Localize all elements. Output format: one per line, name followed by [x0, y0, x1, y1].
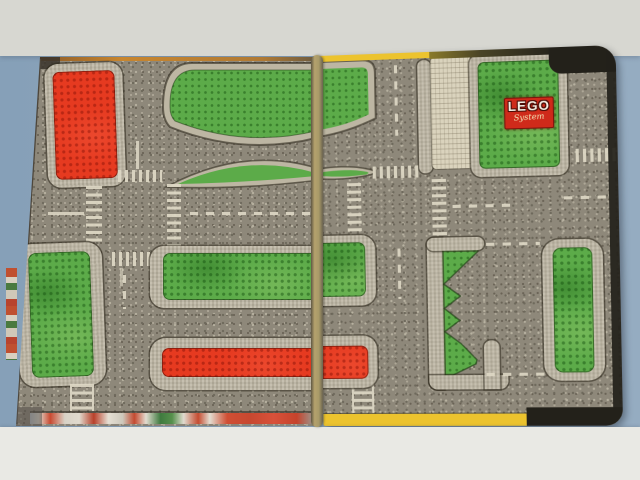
- corner-marking: [120, 268, 123, 286]
- folded-cover-art-bottom-edge: [30, 413, 318, 424]
- lego-logo: LEGO System: [504, 96, 554, 129]
- green-baseplate-right: [552, 247, 594, 372]
- board-right-half: LEGO System: [316, 45, 623, 426]
- lego-plate-grass: LEGO System: [477, 59, 560, 168]
- crosswalk-main-road-west: [86, 186, 102, 244]
- green-baseplate-middle: [163, 253, 318, 300]
- zigzag-curb-left: [427, 238, 445, 390]
- board-left-half: [14, 57, 318, 426]
- crosswalk-top-vertical-road: [118, 170, 162, 182]
- centerline-main-road-left: [190, 212, 318, 215]
- cream-baseplate: [430, 56, 473, 169]
- centerline-top-vertical-road: [136, 141, 139, 169]
- green-baseplate-middle-curb: [150, 246, 318, 308]
- centerline-south-vertical-road: [123, 275, 126, 309]
- crosswalk-main-road-east: [167, 184, 181, 246]
- stopline-main-road: [48, 212, 84, 215]
- crosswalk-bottom-left: [70, 384, 94, 411]
- green-baseplate-right-curb: [542, 239, 605, 381]
- board-fold-seam: [311, 55, 323, 427]
- red-strip-plate: [162, 348, 318, 377]
- dashed-outline-bottom: [487, 373, 545, 376]
- photo-of-lego-town-board: LEGO System: [0, 0, 640, 480]
- park-grass-studs: [170, 70, 318, 138]
- crosswalk-south-vertical-road: [112, 252, 150, 266]
- folded-cover-art-left-edge: [6, 268, 17, 360]
- backdrop-bottom-band: [0, 427, 640, 480]
- crosswalk-main-road-center: [432, 179, 447, 240]
- lego-logo-subtitle: System: [505, 111, 553, 123]
- board-corner-shadow: [14, 407, 42, 426]
- green-baseplate-middle-right-curb: [320, 235, 376, 306]
- green-baseplate-middle-right: [320, 242, 366, 297]
- green-baseplate-left-curb: [16, 242, 107, 388]
- red-strip-right-curb: [322, 335, 378, 388]
- board-edge-bottom-black: [526, 407, 623, 426]
- crosswalk-vertical-road-north: [373, 165, 421, 178]
- board-edge-bottom-yellow: [323, 414, 531, 427]
- red-strip-right: [322, 346, 369, 379]
- green-baseplate-left: [28, 251, 94, 378]
- red-strip-plate-curb: [150, 338, 318, 390]
- crosswalk-bottom-right-half: [352, 384, 375, 413]
- zigzag-curb-hook: [484, 340, 500, 389]
